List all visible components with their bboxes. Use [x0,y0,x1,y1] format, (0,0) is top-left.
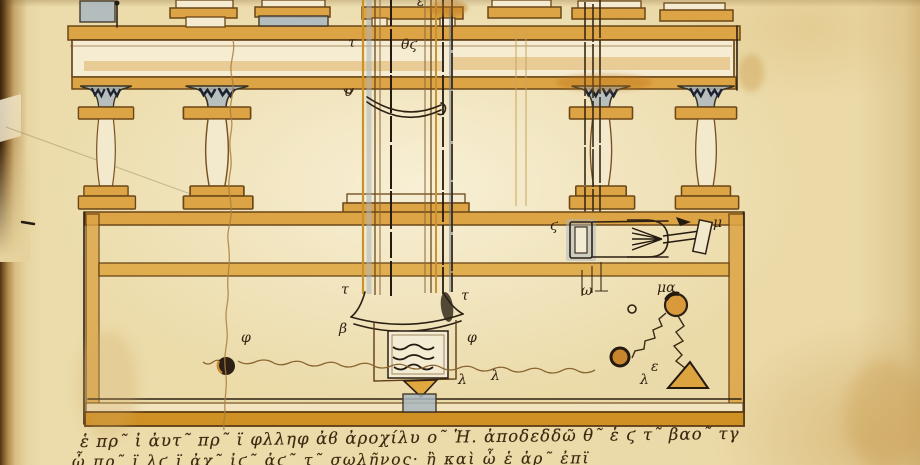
bell-vessel [351,291,463,412]
greek-label: φ [467,330,477,346]
column [183,86,252,209]
greek-label: ϛ [550,218,559,234]
column [570,86,635,209]
greek-label: λ [639,372,649,388]
greek-label: τ [341,282,349,298]
greek-label: ε [417,0,425,10]
greek-label: ε [651,359,659,375]
greek-label: μ [713,215,722,231]
greek-label: λ [490,368,500,384]
entablature [68,26,740,90]
tube-base-slab [347,194,465,203]
small-ring [628,305,636,313]
counterweight [668,362,708,388]
manuscript-page: τθϛευϛμωμαελτβφφτλλ ἑ πρ῀ ἰ ἀυτ῀ πρ῀ ϊ φ… [0,0,920,465]
greek-label: β [338,321,347,337]
greek-label: τ [461,288,469,304]
greek-label: υ [344,84,353,100]
greek-label: μα [657,280,676,296]
chain-to-weight [674,316,685,368]
inner-vessel [388,331,448,378]
greek-label: λ [457,372,467,388]
pedestal-block [403,394,436,412]
machine-diagram: τθϛευϛμωμαελτβφφτλλ [0,0,920,465]
tank-mid-rail [99,263,729,276]
column [78,86,135,209]
margin-tick [22,222,34,224]
column [675,86,738,209]
roof-pedestals [80,0,733,27]
greek-label: φ [241,330,251,346]
greek-label: ω [581,283,593,299]
chain-ball [611,348,629,366]
greek-label: θϛ [401,37,418,53]
tank-bottom-band [85,412,744,426]
chain-to-float [632,313,666,358]
tube-strap [367,97,441,117]
greek-label: τ [348,35,356,51]
caption-text-line-2: ὦ πρ῀ ϊ λϛ ϊ ἀχ῀ ἰϛ῀ ἀϛ῀ τ῀ σωλῆνος· ἢ κ… [72,449,590,465]
